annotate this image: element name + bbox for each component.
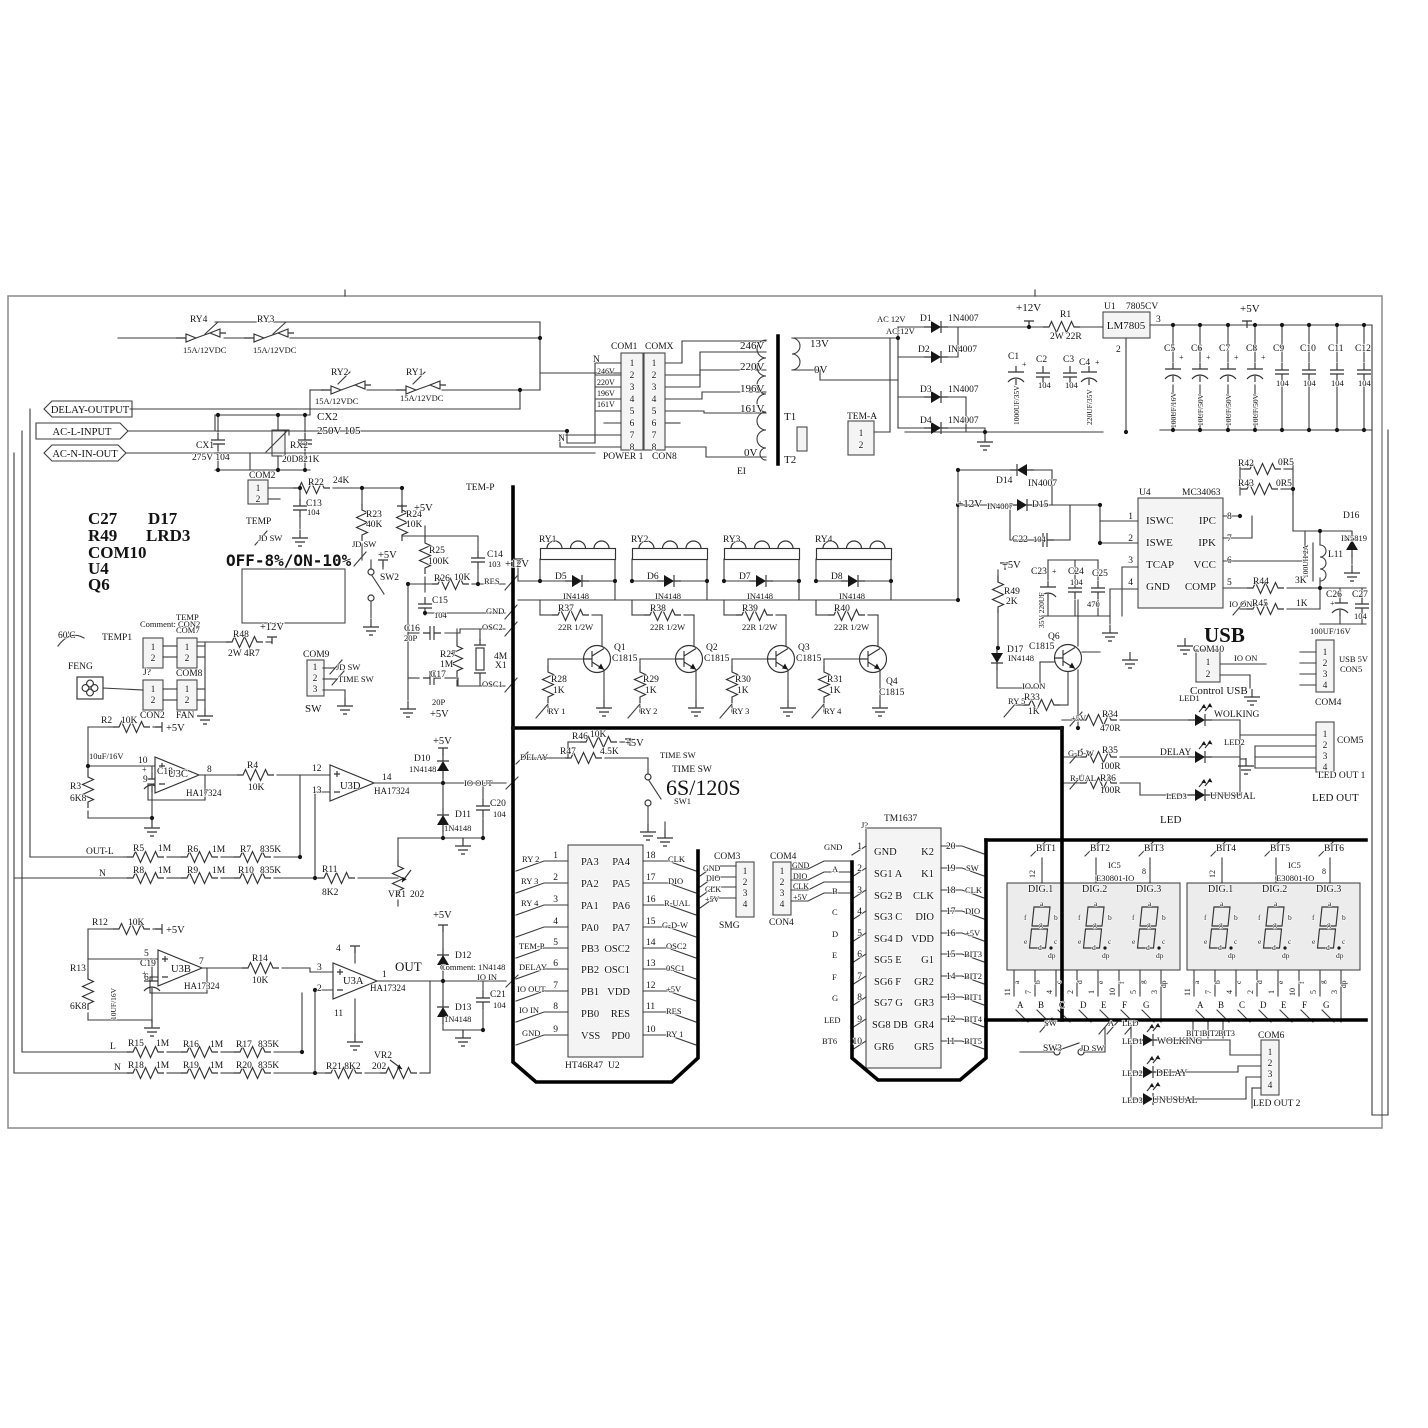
label-pb0: PB0	[581, 1009, 599, 1020]
label-7: 7	[199, 957, 204, 967]
label-20d821k: 20D821K	[282, 455, 320, 465]
wire	[648, 779, 661, 799]
label-t1: T1	[784, 411, 796, 423]
label-104: 104	[493, 809, 507, 819]
label-dp: dp	[1228, 951, 1236, 960]
label-vr2: VR2	[374, 1051, 392, 1061]
label-19: 19	[946, 864, 956, 874]
label-+5v: +5V	[166, 925, 185, 936]
label-con8: CON8	[652, 452, 677, 462]
label-ry2: RY2	[631, 535, 649, 545]
label-vss: VSS	[581, 1031, 600, 1042]
label-r13: R13	[70, 964, 86, 974]
label-4: 4	[630, 395, 635, 405]
label-sg1-a: SG1 A	[874, 869, 903, 880]
label-2: 2	[317, 984, 322, 994]
label-e: E	[832, 950, 837, 960]
label-r36: R36	[1100, 774, 1116, 784]
label-in4148: IN4148	[747, 591, 773, 601]
label-c9: C9	[1273, 344, 1284, 354]
label-k2: K2	[921, 847, 934, 858]
label-10: 10	[1108, 988, 1117, 996]
label-8: 8	[652, 443, 657, 453]
gnd-symbol	[596, 700, 612, 716]
pwr-symbol	[155, 924, 162, 934]
label-a: a	[1012, 980, 1021, 984]
label-comp: COMP	[1185, 581, 1216, 593]
label-smg: SMG	[719, 921, 740, 931]
wire	[505, 678, 517, 692]
label-io-on: IO ON	[1229, 599, 1252, 609]
label-0v: 0V	[744, 447, 758, 459]
label-ry2: RY2	[331, 368, 349, 378]
label-11: 11	[946, 1037, 955, 1047]
label-gr4: GR4	[914, 1020, 935, 1031]
label-2: 2	[1128, 534, 1133, 544]
label-ry1: RY1	[539, 535, 557, 545]
label-+: +	[1179, 353, 1184, 362]
label-gr2: GR2	[914, 977, 934, 988]
label-sw: SW	[305, 703, 322, 715]
label-3: 3	[1268, 1070, 1273, 1080]
junction-dot	[1307, 428, 1311, 432]
junction-dot	[298, 486, 302, 490]
label-d11: D11	[455, 810, 471, 820]
label-gnd: GND	[874, 847, 897, 858]
label-ha17324: HA17324	[374, 786, 410, 796]
schematic-canvas: RY4RY315A/12VDC15A/12VDCRY2RY115A/12VDC1…	[0, 0, 1428, 1428]
label-bit1: BIT1	[1186, 1029, 1203, 1038]
label-1: 1	[151, 685, 156, 695]
label-104: 104	[434, 610, 448, 620]
label-4-5k: 4.5K	[600, 747, 619, 757]
label-10k: 10K	[121, 716, 138, 726]
label-20: 20	[946, 842, 956, 852]
label-10uf-16v: 10uF/16V	[89, 751, 124, 761]
label-10k: 10K	[454, 573, 471, 583]
label-c23: C23	[1031, 567, 1047, 577]
label-12: 12	[1028, 870, 1037, 878]
label-5: 5	[1309, 990, 1318, 994]
label-d: D	[832, 929, 838, 939]
label-led3: LED3	[1166, 791, 1187, 801]
circ-symbol	[368, 595, 374, 601]
circ-symbol	[645, 774, 651, 780]
label-ry3: RY3	[257, 315, 275, 325]
label-vr1: VR1	[388, 890, 406, 900]
label-d: d	[1092, 943, 1096, 952]
label-12: 12	[646, 981, 656, 991]
label-io-in: IO IN	[477, 972, 497, 982]
res-symbol	[993, 576, 1004, 613]
label-5: 5	[652, 407, 657, 417]
label-dio: DIO	[706, 874, 720, 883]
label-e: E	[1281, 1000, 1287, 1010]
gnd-symbol	[337, 698, 353, 714]
dio-symbol	[749, 575, 773, 587]
label-in4148: IN4148	[655, 591, 681, 601]
label-1k: 1K	[553, 686, 565, 696]
gnd-symbol	[688, 700, 704, 716]
contact-symbol	[176, 329, 226, 342]
junction-dot	[1027, 325, 1031, 329]
label-sg2-b: SG2 B	[874, 891, 902, 902]
label-2: 2	[151, 696, 156, 706]
label-16: 16	[946, 929, 956, 939]
label-r33: R33	[1024, 693, 1040, 703]
junction-dot	[1362, 428, 1366, 432]
label-14: 14	[646, 938, 656, 948]
label-6: 6	[1227, 556, 1232, 566]
label-dio: DIO	[668, 876, 683, 886]
label-10uf-50v: 10UF/50V	[1224, 393, 1233, 426]
junction-dot	[511, 726, 515, 730]
label-bit1: BIT1	[964, 992, 982, 1002]
label-jd-sw: JD SW	[352, 539, 376, 549]
label-7: 7	[652, 431, 657, 441]
label-+: +	[1234, 353, 1239, 362]
label-2: 2	[743, 878, 748, 888]
label-jd-sw: JD SW	[258, 533, 282, 543]
label-tem-p: TEM-P	[519, 941, 545, 951]
label-dp: dp	[1282, 951, 1290, 960]
label-led: LED	[1122, 1018, 1139, 1028]
label-sw3: SW3	[1043, 1044, 1062, 1054]
label-+: +	[1206, 353, 1211, 362]
label-4: 4	[1323, 681, 1328, 691]
label-10k: 10K	[252, 976, 269, 986]
label-2: 2	[185, 654, 190, 664]
label-r30: R30	[735, 675, 751, 685]
label-g: g	[1273, 920, 1277, 929]
label-r28: R28	[551, 675, 567, 685]
label-bit5: BIT5	[964, 1036, 982, 1046]
label-bit5: BIT5	[1270, 844, 1290, 854]
npn-symbol	[676, 646, 703, 673]
gnd-symbol	[144, 1020, 160, 1036]
label-dp: dp	[1159, 980, 1168, 988]
dio-symbol	[1010, 499, 1034, 511]
label-r16: R16	[183, 1040, 199, 1050]
label-+12v: +12V	[957, 498, 982, 510]
label-pa4: PA4	[612, 857, 630, 868]
wire	[103, 688, 143, 690]
junction-dot	[1226, 323, 1230, 327]
label-d: d	[1255, 980, 1264, 984]
label-ac-n-in-out: AC-N-IN-OUT	[52, 449, 118, 460]
pwr-symbol	[378, 560, 388, 567]
label-1: 1	[1323, 730, 1328, 740]
label-3: 3	[1323, 752, 1328, 762]
label-835k: 835K	[258, 1061, 279, 1071]
label-+5v: +5V	[166, 723, 185, 734]
label-out: OUT	[395, 959, 422, 974]
wire	[1059, 1043, 1079, 1050]
label-d: d	[1146, 943, 1150, 952]
label-c8: C8	[1246, 344, 1257, 354]
label-u4: U4	[1139, 488, 1151, 498]
label-sg3-c: SG3 C	[874, 912, 902, 923]
label-c5: C5	[1164, 344, 1175, 354]
label-r1: R1	[1060, 310, 1071, 320]
label-c1815: C1815	[612, 654, 638, 664]
junction-dot	[216, 468, 220, 472]
junction-dot	[441, 781, 445, 785]
label-d: D	[1260, 1000, 1267, 1010]
label-10uf-16v: 10UF/16V	[109, 987, 118, 1020]
junction-dot	[406, 582, 410, 586]
label-io-on: IO ON	[1022, 681, 1045, 691]
label-res: RES	[611, 1009, 630, 1020]
label-sg4-d: SG4 D	[874, 934, 903, 945]
label-100uh-2a: 100UH 2A	[1301, 544, 1310, 578]
contact-symbol	[244, 329, 294, 342]
label-275v-104: 275V 104	[192, 453, 230, 463]
label-104: 104	[1358, 378, 1372, 388]
junction-dot	[276, 413, 280, 417]
label-r-ual: R-UAL	[664, 898, 690, 908]
label-12: 12	[1208, 870, 1217, 878]
label-delay: DELAY	[1156, 1069, 1187, 1079]
label-1n4007: 1N4007	[948, 314, 979, 324]
junction-dot	[1171, 323, 1175, 327]
label-1: 1	[185, 685, 190, 695]
label-r20: R20	[236, 1061, 252, 1071]
label-1: 1	[743, 867, 748, 877]
junction-dot	[814, 579, 818, 583]
label-delay: DELAY	[1160, 748, 1191, 758]
label-clk: CLK	[793, 882, 809, 891]
label-2w-22r: 2W 22R	[1050, 332, 1082, 342]
label-835k: 835K	[260, 866, 281, 876]
label-c: C	[832, 907, 838, 917]
cap-symbol	[293, 499, 307, 517]
label-10: 10	[853, 1037, 863, 1047]
label-g1: G1	[921, 955, 934, 966]
label-gnd: GND	[792, 861, 810, 870]
label-11: 11	[334, 1009, 343, 1019]
junction-dot	[300, 1050, 304, 1054]
label-time-sw: TIME SW	[672, 765, 712, 775]
label-15: 15	[646, 917, 656, 927]
pwr-symbol	[438, 748, 448, 755]
label-c7: C7	[1219, 344, 1230, 354]
label-2: 2	[1246, 990, 1255, 994]
label-osc1: OSC1	[604, 965, 630, 976]
label-100r: 100R	[1100, 762, 1121, 772]
gnd-symbol	[347, 1034, 363, 1050]
res-symbol	[242, 963, 279, 974]
label-1: 1	[313, 663, 318, 673]
label-2: 2	[553, 873, 558, 883]
dio-symbol	[565, 575, 589, 587]
label-d5: D5	[555, 572, 567, 582]
label-sg7-g: SG7 G	[874, 998, 903, 1009]
led-symbol	[1188, 740, 1213, 763]
label-g: g	[1138, 980, 1147, 984]
junction-dot	[1198, 323, 1202, 327]
label-dig-2: DIG.2	[1082, 884, 1107, 895]
label-bit4: BIT4	[1216, 844, 1236, 854]
label-104: 104	[1065, 380, 1079, 390]
label-196v: 196V	[597, 389, 615, 398]
junction-dot	[565, 429, 569, 433]
pwr-symbol	[267, 637, 277, 644]
junction-dot	[150, 816, 154, 820]
label-led-out-2: LED OUT 2	[1253, 1099, 1301, 1109]
label-d7: D7	[739, 572, 751, 582]
label-8: 8	[1142, 867, 1146, 876]
junction-dot	[1226, 428, 1230, 432]
label-3: 3	[780, 889, 785, 899]
label-+12v: +12V	[505, 559, 529, 570]
label-1n4007: 1N4007	[948, 385, 979, 395]
label-c11: C11	[1328, 344, 1344, 354]
junction-dot	[722, 579, 726, 583]
label-c12: C12	[1355, 344, 1371, 354]
label-bit2: BIT2	[1090, 844, 1110, 854]
label-sw2: SW2	[380, 573, 399, 583]
label-g: G	[1323, 1000, 1330, 1010]
label-u3a: U3A	[343, 976, 364, 987]
label-osc2: OSC2	[482, 622, 503, 632]
label-3: 3	[317, 963, 322, 973]
label-1m: 1M	[158, 844, 172, 854]
label-1m: 1M	[210, 1061, 224, 1071]
label-7: 7	[630, 431, 635, 441]
label-+: +	[1095, 358, 1100, 367]
label-ry-3: RY 3	[521, 876, 538, 886]
label-220v: 220V	[597, 378, 615, 387]
label-196v: 196V	[740, 383, 765, 395]
label-4: 4	[1045, 990, 1054, 994]
label-+12v: +12V	[260, 622, 284, 633]
label-c10: C10	[1300, 344, 1316, 354]
gnd-symbol	[144, 820, 160, 836]
label-4: 4	[336, 944, 341, 954]
label-7: 7	[1204, 990, 1213, 994]
label-gr5: GR5	[914, 1042, 934, 1053]
junction-dot	[1335, 428, 1339, 432]
label-r47: R47	[560, 747, 576, 757]
label-tcap: TCAP	[1146, 559, 1174, 571]
label-dio: DIO	[793, 872, 807, 881]
label-g: g	[1219, 920, 1223, 929]
gnd-symbol	[400, 701, 416, 717]
label-b: b	[1108, 913, 1112, 922]
junction-dot	[1098, 503, 1102, 507]
label-470: 470	[1087, 599, 1100, 609]
label-3: 3	[553, 895, 558, 905]
label-b: b	[1033, 980, 1042, 984]
label-2: 2	[1066, 990, 1075, 994]
label-r31: R31	[827, 675, 843, 685]
label-1n4148: 1N4148	[444, 823, 471, 833]
label-+5v: +5V	[666, 984, 682, 994]
label-4: 4	[1268, 1081, 1273, 1091]
xtal-symbol	[474, 639, 486, 679]
label-bit6: BIT6	[1324, 844, 1344, 854]
label-d4: D4	[920, 416, 932, 426]
label-c: C	[1239, 1000, 1245, 1010]
label-2: 2	[630, 371, 635, 381]
winding-path	[757, 340, 766, 460]
junction-dot	[1362, 323, 1366, 327]
label-d10: D10	[414, 754, 431, 764]
label-40k: 40K	[366, 520, 383, 530]
junction-dot	[303, 413, 307, 417]
wire	[505, 622, 517, 636]
label-dp: dp	[1102, 951, 1110, 960]
label-835k: 835K	[260, 845, 281, 855]
label-f: f	[1117, 981, 1126, 984]
label-l: L	[110, 1042, 116, 1052]
label-15: 15	[946, 950, 956, 960]
label-r18: R18	[128, 1061, 144, 1071]
label-ei: EI	[737, 467, 746, 477]
label-2: 2	[1323, 659, 1328, 669]
label-6: 6	[652, 419, 657, 429]
label-c4: C4	[1079, 358, 1090, 368]
cap-symbol	[423, 626, 441, 640]
label-6: 6	[630, 419, 635, 429]
label-bit3: BIT3	[964, 949, 982, 959]
label-7: 7	[857, 972, 862, 982]
label-r10: R10	[238, 866, 254, 876]
wire	[536, 704, 548, 718]
label-time-sw: TIME SW	[338, 674, 374, 684]
pwr-symbol	[438, 925, 448, 932]
label-r26: R26	[434, 574, 450, 584]
label-pa2: PA2	[581, 879, 599, 890]
label-g-d-w: G-D-W	[1068, 748, 1094, 758]
label-c3: C3	[1063, 355, 1074, 365]
label-bit2: BIT2	[964, 971, 982, 981]
junction-dot	[1280, 428, 1284, 432]
npn-symbol	[584, 646, 611, 673]
circ-symbol	[368, 569, 374, 575]
junction-dot	[1253, 323, 1257, 327]
label-u2: U2	[608, 1061, 620, 1071]
junction-dot	[481, 1028, 485, 1032]
label-202: 202	[410, 890, 425, 900]
label-q4: Q4	[886, 677, 898, 687]
component-box	[272, 430, 285, 456]
pwr-symbol	[350, 946, 360, 953]
label-io-on: IO ON	[1234, 653, 1257, 663]
label-comment-1n4148: Comment: 1N4148	[440, 962, 505, 972]
label-r8: R8	[133, 866, 144, 876]
label-r43: R43	[1238, 479, 1254, 489]
label-20p: 20P	[432, 697, 446, 707]
label-led1: LED1	[1122, 1036, 1143, 1046]
label-e: e	[1276, 980, 1285, 984]
label-b: b	[1342, 913, 1346, 922]
label-9: 9	[143, 775, 148, 785]
label-lm7805: LM7805	[1107, 320, 1146, 332]
contact-symbol	[321, 381, 371, 394]
label-16: 16	[646, 895, 656, 905]
label-g: g	[1318, 980, 1327, 984]
junction-dot	[1124, 430, 1128, 434]
label-4: 4	[1225, 990, 1234, 994]
label-u3c: U3C	[168, 769, 188, 780]
label-wolking: WOLKING	[1214, 710, 1260, 720]
label-dp: dp	[1048, 951, 1056, 960]
label-ry-1: RY 1	[666, 1029, 683, 1039]
label-1n4007: 1N4007	[948, 416, 979, 426]
label-r40: R40	[834, 604, 850, 614]
